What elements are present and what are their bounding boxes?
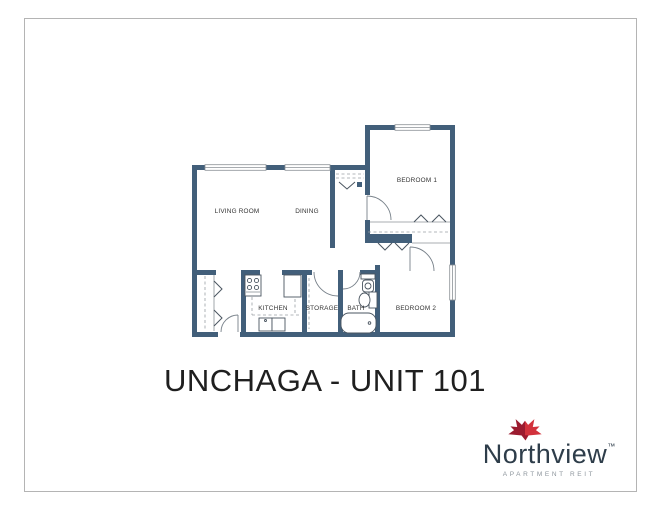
hall-linen-closet xyxy=(336,174,364,189)
storage-door-icon xyxy=(314,272,338,296)
logo-wordmark: Northview™ xyxy=(479,441,619,468)
northview-logo: Northview™ APARTMENT REIT xyxy=(479,416,619,478)
dining-window-icon xyxy=(285,165,330,171)
bedroom1-window-icon xyxy=(395,125,430,131)
room-label-bedroom2: BEDROOM 2 xyxy=(396,305,436,312)
fridge-icon xyxy=(284,275,301,297)
kitchen-sink-icon xyxy=(259,318,285,331)
bedroom2-door-icon xyxy=(410,247,434,271)
room-label-storage: STORAGE xyxy=(306,305,339,312)
trademark-symbol: ™ xyxy=(607,442,615,451)
floor-plan: LIVING ROOM DINING BEDROOM 1 BEDROOM 2 K… xyxy=(180,105,465,350)
room-label-dining: DINING xyxy=(295,208,319,215)
kitchen-fixtures xyxy=(245,275,309,331)
stove-icon xyxy=(245,275,261,296)
living-room-window-icon xyxy=(205,165,266,171)
bath-door-icon xyxy=(343,272,360,289)
logo-tagline: APARTMENT REIT xyxy=(479,471,619,478)
bedroom-closet-strip xyxy=(368,215,450,250)
toilet-icon xyxy=(361,274,375,292)
room-label-bedroom1: BEDROOM 1 xyxy=(397,177,437,184)
room-label-bath: BATH xyxy=(347,305,365,312)
entry-door-icon xyxy=(221,315,238,332)
maple-leaf-icon xyxy=(504,416,546,441)
room-label-living-room: LIVING ROOM xyxy=(215,208,260,215)
logo-brand-text: Northview xyxy=(483,439,608,469)
entry-closet xyxy=(205,275,222,331)
bedroom1-door-icon xyxy=(367,196,391,220)
bedroom2-window-icon xyxy=(450,265,456,300)
unit-title: UNCHAGA - UNIT 101 xyxy=(125,363,525,399)
bathtub-icon xyxy=(341,313,376,333)
room-label-kitchen: KITCHEN xyxy=(258,305,288,312)
bath-fixtures xyxy=(341,274,377,333)
